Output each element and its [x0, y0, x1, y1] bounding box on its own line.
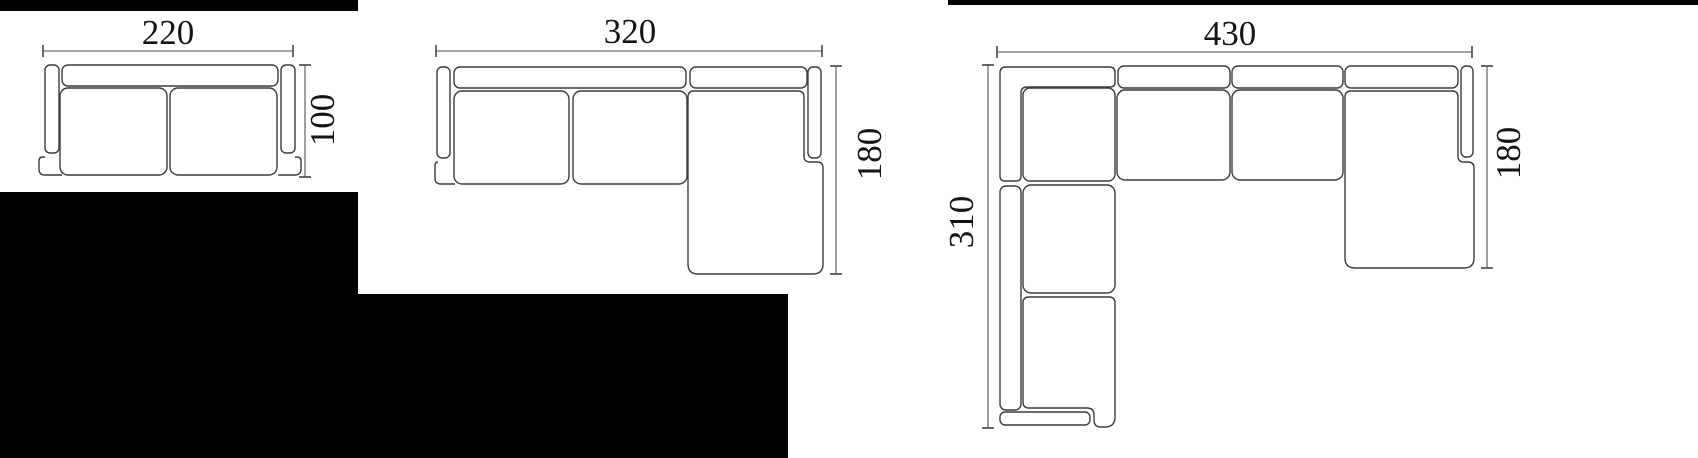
sofa1-width-label: 220 [142, 13, 195, 52]
furniture-dimension-diagram: 220 100 320 180 [0, 0, 1698, 458]
sofa2-seat-cushion-left [454, 91, 569, 184]
sofa-corner-drawing [1000, 66, 1474, 427]
sofa3-right-armrest [1461, 66, 1473, 157]
sofa2-left-armrest [437, 67, 450, 158]
diagram-canvas: 220 100 320 180 [0, 0, 1698, 458]
sofa1-right-armrest [281, 65, 295, 153]
sofa2-left-foot-outline [435, 162, 455, 184]
sofa3-seat-cushion-1 [1117, 90, 1230, 180]
mask-bottom-left-block [0, 192, 358, 458]
sofa3-corner-seat-cushion [1023, 88, 1115, 181]
mask-top-right-bar [948, 0, 1698, 5]
sofa3-left-back-strip [1000, 186, 1021, 410]
sofa-two-seat-drawing [39, 65, 301, 175]
sofa3-left-depth-label: 310 [942, 196, 981, 249]
sofa3-left-seat-upper [1023, 185, 1115, 293]
sofa3-width-label: 430 [1204, 14, 1257, 53]
sofa3-chaise-seat [1345, 91, 1474, 268]
sofa1-right-foot-outline [278, 157, 301, 175]
mask-bottom-middle-block [358, 294, 788, 458]
sofa2-backrest [454, 67, 686, 88]
sofa3-right-depth-label: 180 [1489, 127, 1528, 180]
sofa2-chaise-seat [688, 91, 823, 274]
sofa2-depth-label: 180 [850, 128, 889, 181]
sofa1-left-foot-outline [39, 157, 62, 175]
sofa3-backrest-2 [1232, 66, 1343, 88]
sofa3-left-seat-lower [1023, 297, 1115, 427]
sofa2-width-label: 320 [604, 12, 657, 51]
sofa3-chaise-backrest [1345, 66, 1458, 88]
sofa1-seat-cushion-right [170, 88, 277, 175]
sofa2-right-armrest [808, 67, 821, 158]
sofa1-depth-label: 100 [303, 94, 342, 147]
sofa1-backrest [62, 65, 278, 86]
sofa3-front-base-strip [1000, 412, 1090, 425]
sofa1-seat-cushion-left [60, 88, 167, 175]
sofa-chaise-drawing [435, 67, 823, 274]
sofa1-left-armrest [45, 65, 59, 153]
sofa2-seat-cushion-middle [573, 91, 687, 184]
sofa3-backrest-1 [1118, 66, 1230, 88]
mask-top-left-bar [0, 0, 358, 11]
sofa3-seat-cushion-2 [1232, 90, 1343, 180]
sofa2-chaise-backrest [690, 67, 807, 88]
